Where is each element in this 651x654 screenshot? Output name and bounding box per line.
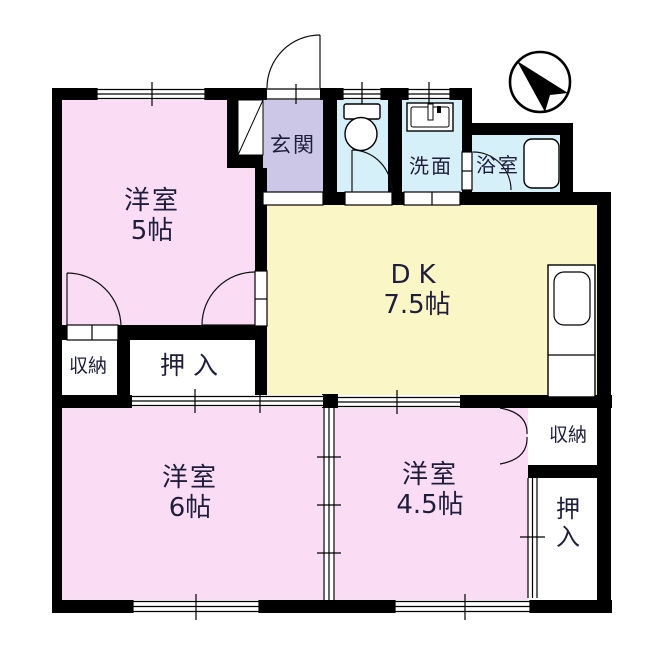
sliding-door-closet-right [520, 478, 545, 598]
wall-storage-right-divider [528, 465, 597, 478]
bathtub-icon [524, 139, 559, 188]
label-closet-right-char1: 押 [552, 496, 584, 524]
wall-washroom-bathroom [462, 88, 472, 205]
storage-right-bifold-door [500, 408, 527, 464]
wall-dk-bottom-right [460, 395, 612, 408]
label-west5: 洋室 5帖 [90, 186, 214, 246]
opening-washroom-door [404, 192, 460, 205]
window-toilet-top [343, 82, 381, 106]
wall-partition-head [322, 394, 338, 408]
room-toilet-fill [337, 100, 388, 192]
wall-dk-top [257, 192, 607, 205]
washbasin-icon [407, 103, 453, 131]
opening-entrance-step [263, 192, 323, 205]
sliding-partition-west6-west45 [317, 407, 341, 601]
label-west5-name: 洋室 [90, 186, 214, 216]
wall-entrance-toilet [323, 100, 337, 192]
wall-left [52, 88, 62, 613]
wall-right [597, 192, 611, 613]
wall-west5-bottom [52, 325, 267, 340]
label-washroom: 洗面 [400, 155, 462, 178]
label-storage-right: 収納 [538, 424, 598, 446]
floor-plan: 洋室 5帖 玄関 洗面 浴室 DK 7.5帖 押入 収納 洋室 6帖 洋室 4.… [0, 0, 651, 654]
wall-bottom [52, 600, 612, 613]
shoe-cabinet [238, 100, 263, 155]
fixtures [344, 103, 595, 397]
shoe-cabinet-diagonal [238, 100, 263, 155]
label-closet-right-char2: 入 [552, 524, 584, 552]
label-dk-size: 7.5帖 [352, 290, 482, 320]
room-washroom-fill [402, 100, 462, 192]
sliding-door-west6-top [132, 389, 323, 413]
wall-toilet-washroom [388, 100, 402, 192]
wall-top-left [52, 88, 325, 100]
label-west5-size: 5帖 [90, 216, 214, 246]
wall-west5-dk [255, 168, 267, 340]
label-entrance: 玄関 [263, 133, 323, 157]
wall-storage-bottom [52, 395, 132, 408]
wall-shoebox-bottom [227, 152, 263, 168]
toilet-icon [344, 104, 380, 151]
north-arrow-icon [510, 52, 570, 112]
sliding-door-dk-west45 [338, 390, 460, 414]
window-west45-bottom [395, 594, 530, 620]
label-west45-size: 4.5帖 [362, 490, 498, 520]
wall-right-bath [560, 123, 573, 205]
opening-toilet-door [345, 192, 392, 205]
opening-west5-dk-door [255, 271, 267, 326]
opening-west5-storage-door [67, 325, 118, 340]
window-washroom-top [408, 82, 450, 106]
label-west45: 洋室 4.5帖 [362, 460, 498, 520]
toilet-door-arc [352, 150, 392, 192]
label-west6: 洋室 6帖 [127, 463, 253, 523]
label-west6-name: 洋室 [127, 463, 253, 493]
window-west6-bottom [133, 594, 259, 620]
kitchen-counter-icon [548, 265, 595, 397]
wall-top-sanitary [323, 88, 472, 100]
opening-front-door [267, 84, 320, 104]
window-west5-top [97, 82, 205, 106]
entrance-door-arc [267, 35, 320, 88]
label-bathroom: 浴室 [469, 154, 527, 177]
wall-top-bath [462, 123, 573, 135]
west5-dk-door-arc [202, 272, 255, 325]
label-west45-name: 洋室 [362, 460, 498, 490]
label-closet-right: 押 入 [552, 496, 584, 552]
label-storage-left: 収納 [58, 355, 118, 377]
label-closet-left: 押入 [127, 351, 259, 380]
west5-storage-door-arc [67, 273, 121, 327]
wall-shoebox-left [227, 100, 240, 158]
floor-plan-drawing [0, 0, 651, 654]
label-dk-name: DK [352, 260, 482, 290]
label-dk: DK 7.5帖 [352, 260, 482, 320]
door-swings [67, 35, 527, 464]
label-west6-size: 6帖 [127, 493, 253, 523]
